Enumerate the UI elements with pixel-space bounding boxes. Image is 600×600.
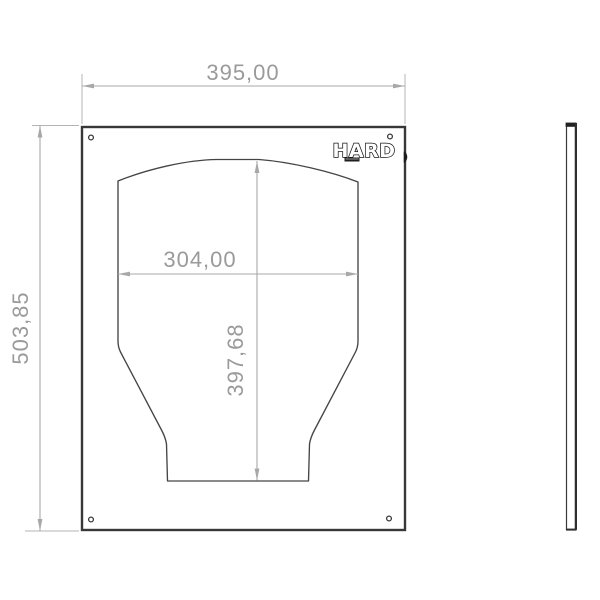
hole-bottom-right	[387, 516, 392, 521]
dimension-value: 397,68	[223, 323, 248, 396]
hard-logo: HARD	[332, 140, 395, 162]
side-view	[566, 123, 577, 530]
dimension-value: 503,85	[8, 291, 33, 364]
side-profile-top-cap	[566, 123, 577, 127]
technical-drawing-page: HARD 395,00 503,85	[0, 0, 600, 600]
side-profile-outline	[567, 124, 576, 530]
logo-subtext-texture	[346, 159, 359, 160]
dimension-overall-width: 395,00	[82, 60, 405, 124]
hole-bottom-left	[89, 517, 94, 522]
arrowhead-left-icon	[82, 84, 94, 89]
edge-tab	[405, 152, 407, 162]
hole-top-right	[388, 134, 393, 139]
arrowhead-right-icon	[393, 84, 405, 89]
drawing-svg: HARD 395,00 503,85	[0, 0, 600, 600]
dimension-value: 304,00	[163, 247, 236, 272]
arrowhead-up-icon	[38, 126, 43, 138]
dimension-overall-height: 503,85	[8, 126, 79, 532]
hole-top-left	[89, 135, 94, 140]
arrowhead-down-icon	[38, 519, 43, 531]
logo-text: HARD	[332, 140, 395, 162]
dimension-value: 395,00	[206, 60, 279, 85]
